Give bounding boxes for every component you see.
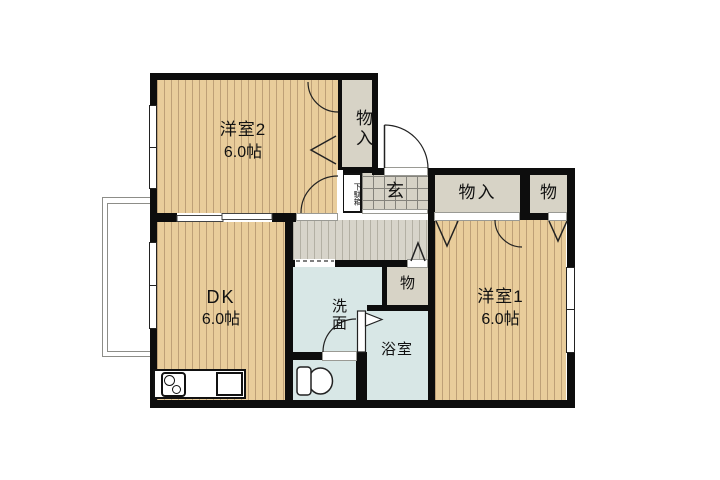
window-dk-upper [149, 242, 157, 286]
washroom-label: 洗面 [321, 286, 347, 344]
storage-center-label: 物 [387, 275, 428, 294]
balcony-inner [107, 203, 152, 352]
wall-washroom-bottom [293, 352, 323, 360]
western2-size-label: 6.0帖 [157, 143, 329, 163]
stove-burner-small [172, 385, 181, 394]
opening-washroom-top [295, 259, 335, 267]
closet-top-label: 物入 [341, 94, 373, 164]
entrance-label: 玄 [362, 180, 428, 203]
opening-washroom-door [322, 351, 357, 361]
sliding-door-panel-2 [222, 214, 272, 220]
entrance-door-arc [385, 125, 429, 169]
toilet-room [293, 360, 358, 400]
shoe-cabinet-label: 下駄箱 [343, 176, 361, 212]
kitchen-sink [216, 372, 243, 396]
opening-closet-hall [434, 212, 520, 221]
entrance-step [362, 209, 428, 214]
wall-western1-left [428, 168, 435, 400]
floorplan-canvas: 洋室2 6.0帖 DK 6.0帖 洋室1 6.0帖 物入 下駄箱 玄 物入 物 … [0, 0, 720, 480]
wall-closet-divider [520, 168, 530, 215]
opening-western2-hall [296, 213, 338, 221]
hallway [293, 220, 428, 260]
wall-bottom [150, 400, 575, 408]
window-western1-upper [566, 267, 575, 310]
western1-name-label: 洋室1 [435, 286, 566, 307]
window-dk-lower [149, 285, 157, 329]
wall-dk-right [285, 213, 293, 408]
closet-hall-label: 物入 [435, 182, 520, 203]
wall-top-right-section [428, 168, 575, 175]
storage-hall-label: 物 [530, 182, 567, 203]
wall-western2-dk-a [150, 213, 177, 222]
opening-storage-center [407, 259, 428, 268]
western2-name-label: 洋室2 [157, 119, 329, 140]
wall-top-left-section [150, 73, 378, 80]
wall-bath-top [367, 305, 428, 311]
dk-size-label: 6.0帖 [157, 310, 285, 330]
stove-burner-large [164, 375, 175, 386]
opening-storage-hall [548, 212, 567, 221]
wall-under-closet-top [338, 167, 378, 173]
window-western2-upper [149, 105, 157, 148]
window-western2-lower [149, 147, 157, 189]
wall-western1-top-seg [519, 213, 550, 220]
dk-name-label: DK [157, 286, 285, 309]
bathroom-door-jamb [358, 311, 366, 352]
sliding-door-panel-1 [177, 216, 223, 222]
western1-size-label: 6.0帖 [435, 310, 566, 330]
opening-entrance-door [384, 167, 428, 176]
window-western1-lower [566, 309, 575, 353]
bathroom-label: 浴室 [366, 341, 428, 360]
